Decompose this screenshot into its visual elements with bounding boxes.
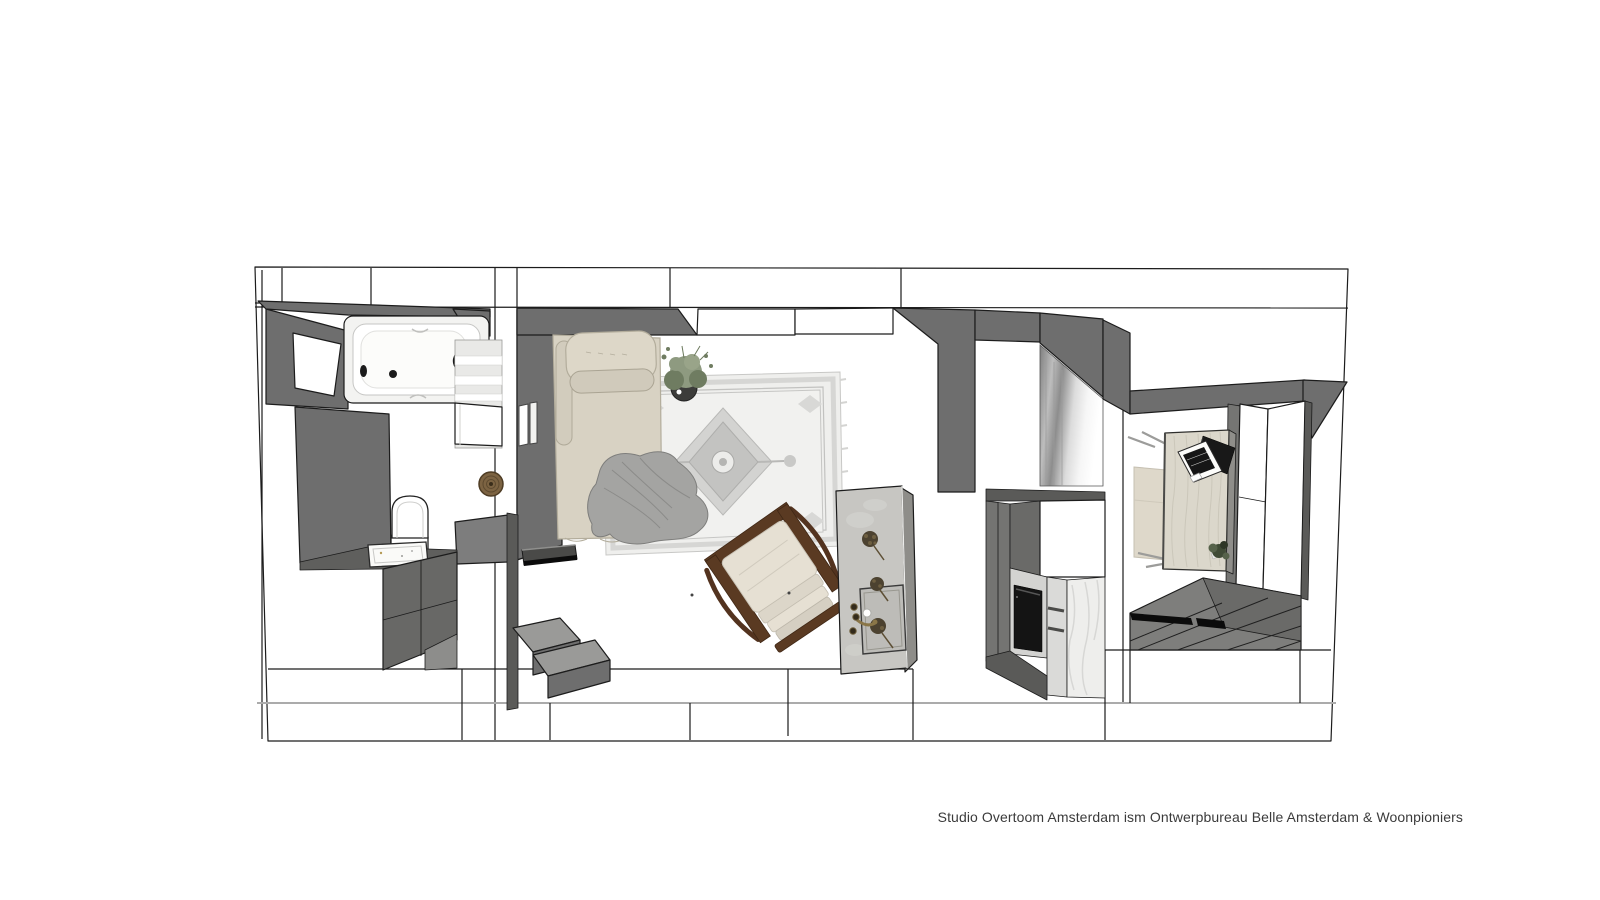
floor-speck (691, 594, 694, 597)
window-top-1 (697, 309, 795, 335)
upper-cabinet (1040, 500, 1105, 577)
wardrobe (1236, 401, 1312, 600)
top-wall-band (517, 308, 697, 335)
bathroom-shelving (455, 340, 502, 448)
floor-plan-render: Studio Overtoom Amsterdam ism Ontwerpbur… (0, 0, 1600, 900)
floor-plan-svg (0, 0, 1600, 900)
wall-cabinet (455, 403, 502, 446)
floor-speck-2 (788, 592, 791, 595)
bathroom-window (293, 333, 341, 396)
roll-pillow (570, 369, 655, 394)
oven (1014, 585, 1042, 652)
credit-caption: Studio Overtoom Amsterdam ism Ontwerpbur… (938, 810, 1463, 824)
island-drain (863, 609, 871, 617)
rattan-mirror (479, 472, 503, 496)
tub-overflow (360, 365, 367, 377)
bathroom-inner-wall (295, 407, 391, 563)
vanity-return-wall (455, 515, 508, 564)
wall-frames (519, 402, 537, 446)
wall-strip (507, 513, 518, 710)
kitchen-island (836, 486, 917, 674)
window-top-2 (795, 308, 893, 334)
tub-drain (389, 370, 397, 378)
